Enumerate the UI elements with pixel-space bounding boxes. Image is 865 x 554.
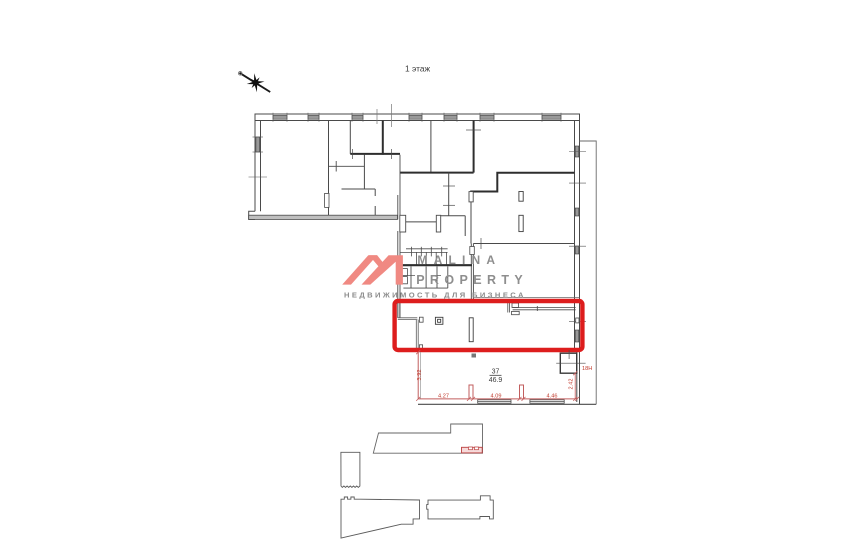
svg-text:1 этаж: 1 этаж: [405, 64, 430, 74]
svg-text:PROPERTY: PROPERTY: [416, 273, 528, 287]
svg-text:НЕДВИЖИМОСТЬ ДЛЯ БИЗНЕСА: НЕДВИЖИМОСТЬ ДЛЯ БИЗНЕСА: [344, 291, 526, 300]
svg-text:37: 37: [492, 369, 500, 376]
svg-text:46.9: 46.9: [489, 377, 503, 384]
svg-text:4.27: 4.27: [438, 393, 449, 399]
svg-text:4.09: 4.09: [491, 393, 502, 399]
svg-text:4.46: 4.46: [547, 393, 558, 399]
svg-text:MALINA: MALINA: [417, 253, 501, 267]
svg-text:2.42: 2.42: [569, 379, 575, 390]
svg-text:3.92: 3.92: [417, 370, 423, 381]
svg-text:18Н: 18Н: [582, 366, 592, 372]
